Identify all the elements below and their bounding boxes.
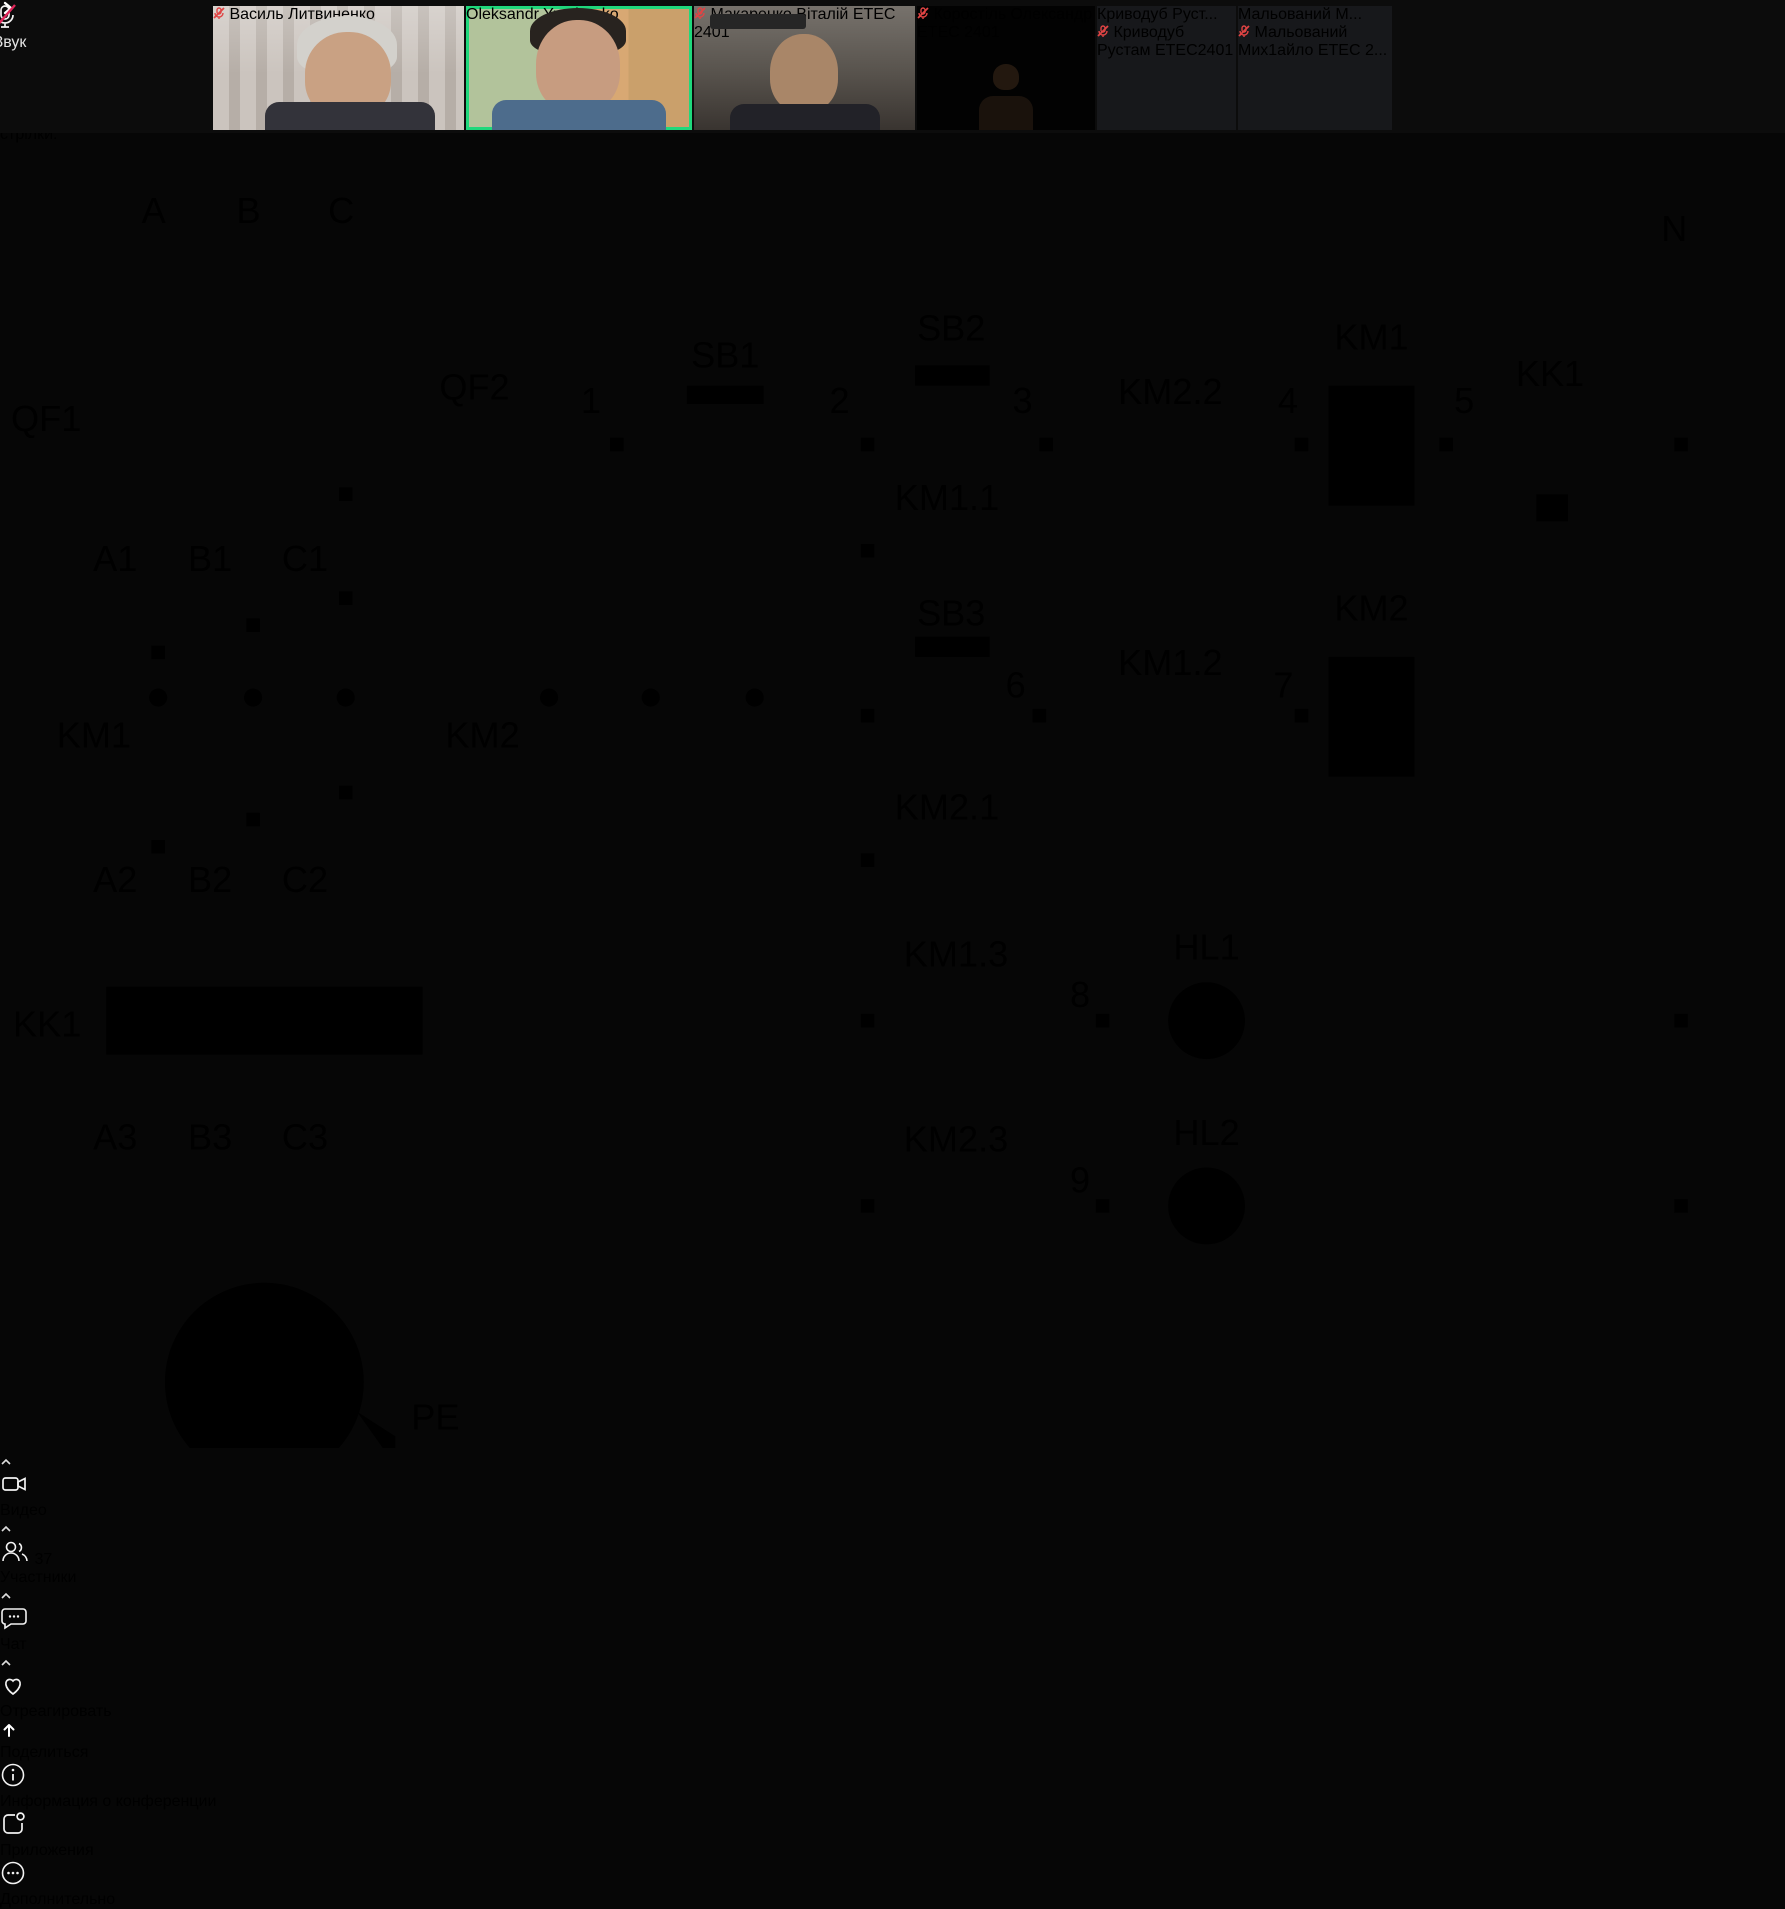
label-km1-2: KM1.2 bbox=[1118, 642, 1222, 683]
more-label: Дополнительно bbox=[0, 1891, 1785, 1909]
label-km1-1: KM1.1 bbox=[895, 477, 999, 518]
label-kk1: KK1 bbox=[13, 1003, 81, 1044]
mic-muted-icon bbox=[0, 3, 19, 31]
participant-shoulders bbox=[492, 100, 666, 130]
participant-face bbox=[536, 20, 620, 112]
label-phase-c: C bbox=[328, 190, 354, 231]
mic-muted-icon bbox=[1238, 25, 1250, 37]
participant-display-name: Мальований М... bbox=[1238, 6, 1392, 24]
bridge-sunset-video bbox=[969, 6, 1043, 130]
participant-name: Мальований Мих1айло ЕТЕС 2... bbox=[1238, 24, 1387, 59]
label-hl2: HL2 bbox=[1173, 1112, 1239, 1153]
chat-options-chevron[interactable] bbox=[0, 1654, 1785, 1672]
label-b1: B1 bbox=[188, 538, 232, 579]
video-options-chevron[interactable] bbox=[0, 1520, 1785, 1538]
label-node-4: 4 bbox=[1278, 380, 1298, 421]
video-tile-3[interactable]: Макаренко Віталій ЕТЕС 2401 bbox=[694, 6, 915, 130]
label-phase-b: B bbox=[236, 190, 260, 231]
more-button[interactable]: Дополнительно bbox=[0, 1860, 1785, 1909]
power-circuit-wires bbox=[93, 246, 796, 1448]
camera-icon bbox=[0, 1471, 28, 1497]
info-label: Информация о конференции bbox=[0, 1793, 1785, 1811]
participant-shoulders bbox=[265, 102, 435, 130]
chat-button[interactable]: Чат bbox=[0, 1605, 1785, 1654]
label-a1: A1 bbox=[93, 538, 137, 579]
label-b3: B3 bbox=[188, 1116, 232, 1157]
label-node-2: 2 bbox=[829, 380, 849, 421]
react-button[interactable]: Отреагировать bbox=[0, 1672, 1785, 1721]
label-sb2: SB2 bbox=[917, 308, 985, 349]
video-tile-6[interactable]: Мальований М... Мальований Мих1айло ЕТЕС… bbox=[1238, 6, 1392, 130]
label-node-9: 9 bbox=[1070, 1159, 1090, 1200]
more-ellipsis-icon bbox=[0, 1860, 26, 1886]
chat-label: Чат bbox=[0, 1636, 1785, 1654]
mic-muted-icon bbox=[213, 7, 225, 19]
label-motor: M bbox=[249, 1370, 279, 1411]
air-conditioner bbox=[710, 14, 806, 29]
label-b2: B2 bbox=[188, 859, 232, 900]
label-a3: A3 bbox=[93, 1116, 137, 1157]
label-km2-2: KM2.2 bbox=[1118, 371, 1222, 412]
video-tile-2-active-speaker[interactable]: Oleksandr Yurchenko bbox=[466, 6, 692, 130]
participants-button[interactable]: 37 Участники bbox=[0, 1538, 1785, 1587]
label-node-5: 5 bbox=[1454, 380, 1474, 421]
participant-name-label: Криводуб Рустам ЕТЕС2401 bbox=[1097, 24, 1236, 60]
label-a2: A2 bbox=[93, 859, 137, 900]
participant-display-name: Криводуб Руст... bbox=[1097, 6, 1236, 24]
mic-muted-icon bbox=[1097, 25, 1109, 37]
label-neutral: N bbox=[1661, 208, 1687, 249]
label-node-1: 1 bbox=[581, 380, 601, 421]
label-kk1-contact: KK1 bbox=[1516, 353, 1584, 394]
video-tile-5[interactable]: Криводуб Руст... Криводуб Рустам ЕТЕС240… bbox=[1097, 6, 1236, 130]
chat-icon bbox=[0, 1605, 28, 1631]
share-screen-icon bbox=[0, 1721, 1785, 1744]
meeting-info-button[interactable]: Информация о конференции bbox=[0, 1762, 1785, 1811]
video-label: Видео bbox=[0, 1502, 1785, 1520]
participants-strip: Василь Литвиненко Oleksandr Yurchenko Ма… bbox=[0, 0, 1785, 133]
participants-label: Участники bbox=[0, 1569, 1785, 1587]
participant-shoulders bbox=[979, 96, 1033, 130]
label-km1-coil: KM1 bbox=[1334, 317, 1408, 358]
label-c2: C2 bbox=[282, 859, 328, 900]
motor-reversing-circuit-diagram: A B C QF1 QF2 A1 B1 C1 KM1 KM2 A2 B2 C2 … bbox=[0, 144, 1785, 1448]
participant-name: Криводуб Рустам ЕТЕС2401 bbox=[1097, 24, 1233, 59]
label-sb1: SB1 bbox=[691, 335, 759, 376]
label-c3: C3 bbox=[282, 1116, 328, 1157]
label-km2-coil: KM2 bbox=[1334, 588, 1408, 629]
video-tile-1[interactable]: Василь Литвиненко bbox=[213, 6, 464, 130]
label-node-6: 6 bbox=[1006, 665, 1026, 706]
react-label: Отреагировать bbox=[0, 1703, 1785, 1721]
apps-icon bbox=[0, 1811, 26, 1837]
mic-muted-icon bbox=[917, 7, 929, 19]
label-qf1: QF1 bbox=[11, 398, 81, 439]
mic-muted-icon bbox=[694, 7, 706, 19]
label-km2-contacts: KM2 bbox=[445, 714, 519, 755]
participants-options-chevron[interactable] bbox=[0, 1587, 1785, 1605]
diagram-labels: A B C QF1 QF2 A1 B1 C1 KM1 KM2 A2 B2 C2 … bbox=[11, 190, 1687, 1438]
label-pe: PE bbox=[411, 1397, 459, 1438]
label-km2-1: KM2.1 bbox=[895, 787, 999, 828]
meeting-toolbar: Звук Видео 3 bbox=[0, 1453, 1785, 1909]
participants-count: 37 bbox=[34, 1551, 52, 1568]
participant-face bbox=[770, 34, 838, 112]
participant-name-label: Мальований Мих1айло ЕТЕС 2... bbox=[1238, 24, 1392, 60]
participant-silhouette bbox=[993, 64, 1019, 90]
label-hl1: HL1 bbox=[1173, 927, 1239, 968]
shared-presentation-slide: Схема запуску електричного двигуна на ре… bbox=[0, 0, 1785, 1453]
apps-button[interactable]: Приложения bbox=[0, 1811, 1785, 1860]
share-label: Поделиться bbox=[0, 1744, 1785, 1762]
label-km1-3: KM1.3 bbox=[904, 933, 1008, 974]
label-node-3: 3 bbox=[1012, 380, 1032, 421]
audio-button[interactable] bbox=[0, 3, 19, 36]
label-qf2: QF2 bbox=[439, 366, 509, 407]
info-icon bbox=[0, 1762, 26, 1788]
label-node-7: 7 bbox=[1273, 665, 1293, 706]
label-c1: C1 bbox=[282, 538, 328, 579]
label-km2-3: KM2.3 bbox=[904, 1119, 1008, 1160]
participant-shoulders bbox=[730, 104, 880, 130]
label-sb3: SB3 bbox=[917, 592, 985, 633]
heart-icon bbox=[0, 1672, 26, 1698]
label-km1-contacts: KM1 bbox=[57, 714, 131, 755]
apps-label: Приложения bbox=[0, 1842, 1785, 1860]
participants-icon bbox=[0, 1538, 30, 1564]
video-tile-4[interactable]: Коростіль Олександр ЕТЕС 2401 bbox=[917, 6, 1095, 130]
share-screen-button[interactable]: Поделиться bbox=[0, 1721, 1785, 1762]
label-phase-a: A bbox=[142, 190, 167, 231]
audio-options-chevron[interactable] bbox=[0, 1453, 1785, 1471]
label-node-8: 8 bbox=[1070, 974, 1090, 1015]
audio-label: Звук bbox=[0, 34, 26, 52]
video-button[interactable]: Видео bbox=[0, 1471, 1785, 1520]
